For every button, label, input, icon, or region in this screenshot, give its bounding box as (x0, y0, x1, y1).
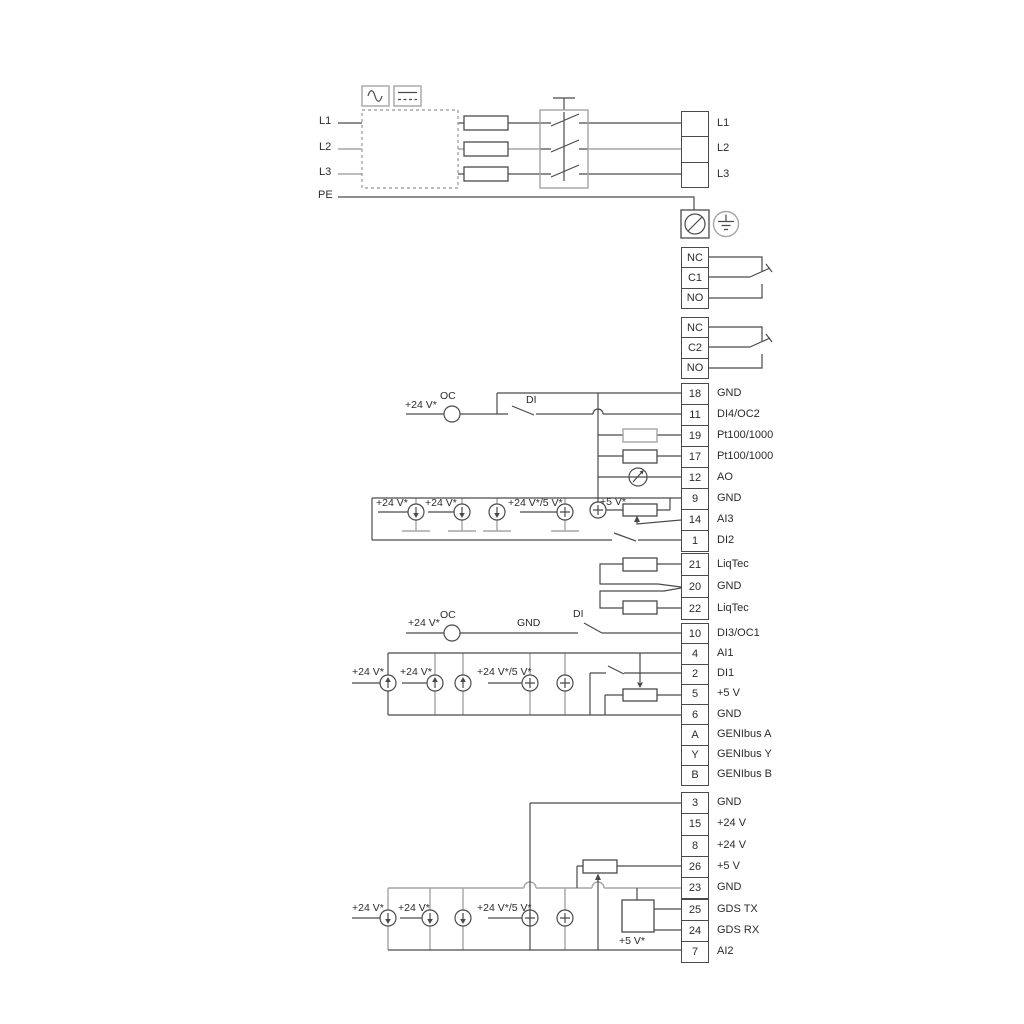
pe-ground-section (681, 210, 739, 238)
terminal-label: GND (717, 492, 741, 505)
terminal-number: Y (691, 749, 698, 761)
terminal-cell-L1 (681, 111, 709, 137)
terminal-label: GENIbus A (717, 728, 771, 741)
potentiometer-icon (623, 504, 657, 516)
terminal-label: +24 V (717, 839, 746, 852)
terminal-number: NC (687, 252, 703, 264)
terminal-cell-6: 6 (681, 704, 709, 725)
mains-label-L2: L2 (319, 142, 331, 153)
terminal-number: 24 (689, 925, 701, 937)
wiper-arrow (637, 683, 643, 689)
terminal-cell-14: 14 (681, 509, 709, 531)
terminal-label: +24 V (717, 817, 746, 830)
wire-label: +5 V* (600, 497, 626, 508)
terminal-number: NO (687, 292, 704, 304)
terminal-number: 18 (689, 388, 701, 400)
wire-label: +24 V* (352, 667, 384, 678)
fuse-icon (464, 167, 508, 181)
wire-label: +5 V* (619, 936, 645, 947)
terminal-cell-A: A (681, 724, 709, 745)
wire-label: OC (440, 391, 456, 402)
fuse-icon (464, 116, 508, 130)
wire-label: +24 V* (405, 400, 437, 411)
terminal-number: 3 (692, 797, 698, 809)
terminal-cell-C2: C2 (681, 337, 709, 358)
terminal-number: C1 (688, 272, 702, 284)
wire-label: OC (440, 610, 456, 621)
terminal-cell-NC: NC (681, 317, 709, 338)
terminal-cell-24: 24 (681, 920, 709, 942)
terminal-label: +5 V (717, 860, 740, 873)
terminal-cell-NO: NO (681, 358, 709, 379)
wire-label: +24 V*/5 V* (508, 498, 563, 509)
terminal-number: 7 (692, 946, 698, 958)
resistor-icon (623, 601, 657, 614)
terminal-number: 19 (689, 430, 701, 442)
terminal-cell-15: 15 (681, 813, 709, 835)
terminal-label: L3 (717, 168, 729, 181)
terminal-label: GENIbus B (717, 768, 772, 781)
wire-label: DI (526, 395, 537, 406)
terminal-cell-NC: NC (681, 247, 709, 268)
terminal-cell-22: 22 (681, 597, 709, 620)
mains-input-section (362, 86, 588, 188)
terminal-number: 9 (692, 493, 698, 505)
terminal-cell-4: 4 (681, 643, 709, 664)
terminal-number: NC (687, 322, 703, 334)
terminal-label: AI2 (717, 945, 734, 958)
wiper-arrow (595, 874, 601, 881)
terminal-label: AI1 (717, 647, 734, 660)
terminal-label: DI3/OC1 (717, 627, 760, 640)
wire-label: +24 V* (398, 903, 430, 914)
open-collector-icon (444, 406, 460, 422)
wire-label: GND (517, 618, 540, 629)
wire-label: +24 V* (376, 498, 408, 509)
terminal-number: 8 (692, 840, 698, 852)
terminal-label: GND (717, 708, 741, 721)
open-collector-icon (444, 625, 460, 641)
wire-label: +24 V* (408, 618, 440, 629)
terminal-number: 1 (692, 535, 698, 547)
wiring-diagram: L1L2L3NCC1NONCC2NO18GND11DI4/OC219Pt100/… (0, 0, 1024, 1024)
terminal-cell-L3 (681, 162, 709, 188)
terminal-label: LiqTec (717, 602, 749, 615)
terminal-cell-21: 21 (681, 553, 709, 576)
terminal-label: GND (717, 580, 741, 593)
terminal-number: 5 (692, 688, 698, 700)
terminal-cell-NO: NO (681, 288, 709, 309)
terminal-cell-12: 12 (681, 467, 709, 489)
terminal-number: B (691, 769, 698, 781)
terminal-cell-9: 9 (681, 488, 709, 510)
terminal-label: GENIbus Y (717, 748, 772, 761)
wire-label: +24 V*/5 V* (477, 903, 532, 914)
terminal-label: GND (717, 881, 741, 894)
terminal-cell-2: 2 (681, 664, 709, 685)
terminal-label: AI3 (717, 513, 734, 526)
terminal-number: 2 (692, 668, 698, 680)
terminal-number: A (691, 729, 698, 741)
terminal-number: 23 (689, 882, 701, 894)
terminal-cell-B: B (681, 765, 709, 786)
terminal-cell-3: 3 (681, 792, 709, 814)
fuse-icon (464, 142, 508, 156)
terminal-number: 14 (689, 514, 701, 526)
terminal-number: 11 (689, 409, 700, 421)
terminal-label: GND (717, 387, 741, 400)
mains-label-L3: L3 (319, 167, 331, 178)
terminal-cell-10: 10 (681, 623, 709, 644)
terminal-number: 17 (689, 451, 701, 463)
earth-ground-bars (718, 215, 734, 230)
terminal-cell-1: 1 (681, 530, 709, 552)
terminal-label: L1 (717, 117, 729, 130)
terminal-label: +5 V (717, 687, 740, 700)
terminal-number: 25 (689, 904, 701, 916)
terminal-cell-23: 23 (681, 877, 709, 899)
wire-label: +24 V*/5 V* (477, 667, 532, 678)
wire-label: +24 V* (425, 498, 457, 509)
potentiometer-icon (583, 860, 617, 873)
terminal-number: 21 (689, 559, 701, 571)
terminal-cell-C1: C1 (681, 267, 709, 288)
terminal-cell-11: 11 (681, 404, 709, 426)
rfi-filter-box (362, 110, 458, 188)
terminal-cell-7: 7 (681, 941, 709, 963)
terminal-cell-5: 5 (681, 684, 709, 705)
terminal-number: 12 (689, 472, 701, 484)
resistor-icon (623, 450, 657, 463)
potentiometer-icon (623, 689, 657, 701)
terminal-cell-26: 26 (681, 856, 709, 878)
terminal-cell-Y: Y (681, 745, 709, 766)
wire-label: +24 V* (400, 667, 432, 678)
terminal-number: 4 (692, 648, 698, 660)
terminal-label: DI2 (717, 534, 734, 547)
mains-label-PE: PE (318, 190, 333, 201)
resistor-icon (623, 429, 657, 442)
terminal-cell-19: 19 (681, 425, 709, 447)
terminal-label: L2 (717, 142, 729, 155)
terminal-label: GDS RX (717, 924, 759, 937)
terminal-label: Pt100/1000 (717, 450, 773, 463)
terminal-number: 22 (689, 603, 701, 615)
terminal-number: 15 (689, 818, 701, 830)
terminal-number: NO (687, 362, 704, 374)
terminal-number: 10 (689, 628, 701, 640)
terminal-label: AO (717, 471, 733, 484)
terminal-cell-8: 8 (681, 835, 709, 857)
terminal-label: DI4/OC2 (717, 408, 760, 421)
terminal-cell-L2 (681, 136, 709, 162)
terminal-cell-17: 17 (681, 446, 709, 468)
terminal-cell-20: 20 (681, 575, 709, 598)
terminal-label: Pt100/1000 (717, 429, 773, 442)
gds-sensor-box (622, 900, 654, 932)
wire-label: +24 V* (352, 903, 384, 914)
terminal-number: 26 (689, 861, 701, 873)
terminal-label: GDS TX (717, 903, 758, 916)
terminal-label: LiqTec (717, 558, 749, 571)
terminal-number: 20 (689, 581, 701, 593)
terminal-label: GND (717, 796, 741, 809)
dc-symbol-box (394, 86, 421, 106)
terminal-cell-18: 18 (681, 383, 709, 405)
gray-wires (338, 149, 681, 950)
resistor-icon (623, 558, 657, 571)
terminal-cell-25: 25 (681, 899, 709, 921)
wire-label: DI (573, 609, 584, 620)
mains-label-L1: L1 (319, 116, 331, 127)
terminal-label: DI1 (717, 667, 734, 680)
wiring-svg (0, 0, 1024, 1024)
terminal-number: C2 (688, 342, 702, 354)
terminal-number: 6 (692, 709, 698, 721)
